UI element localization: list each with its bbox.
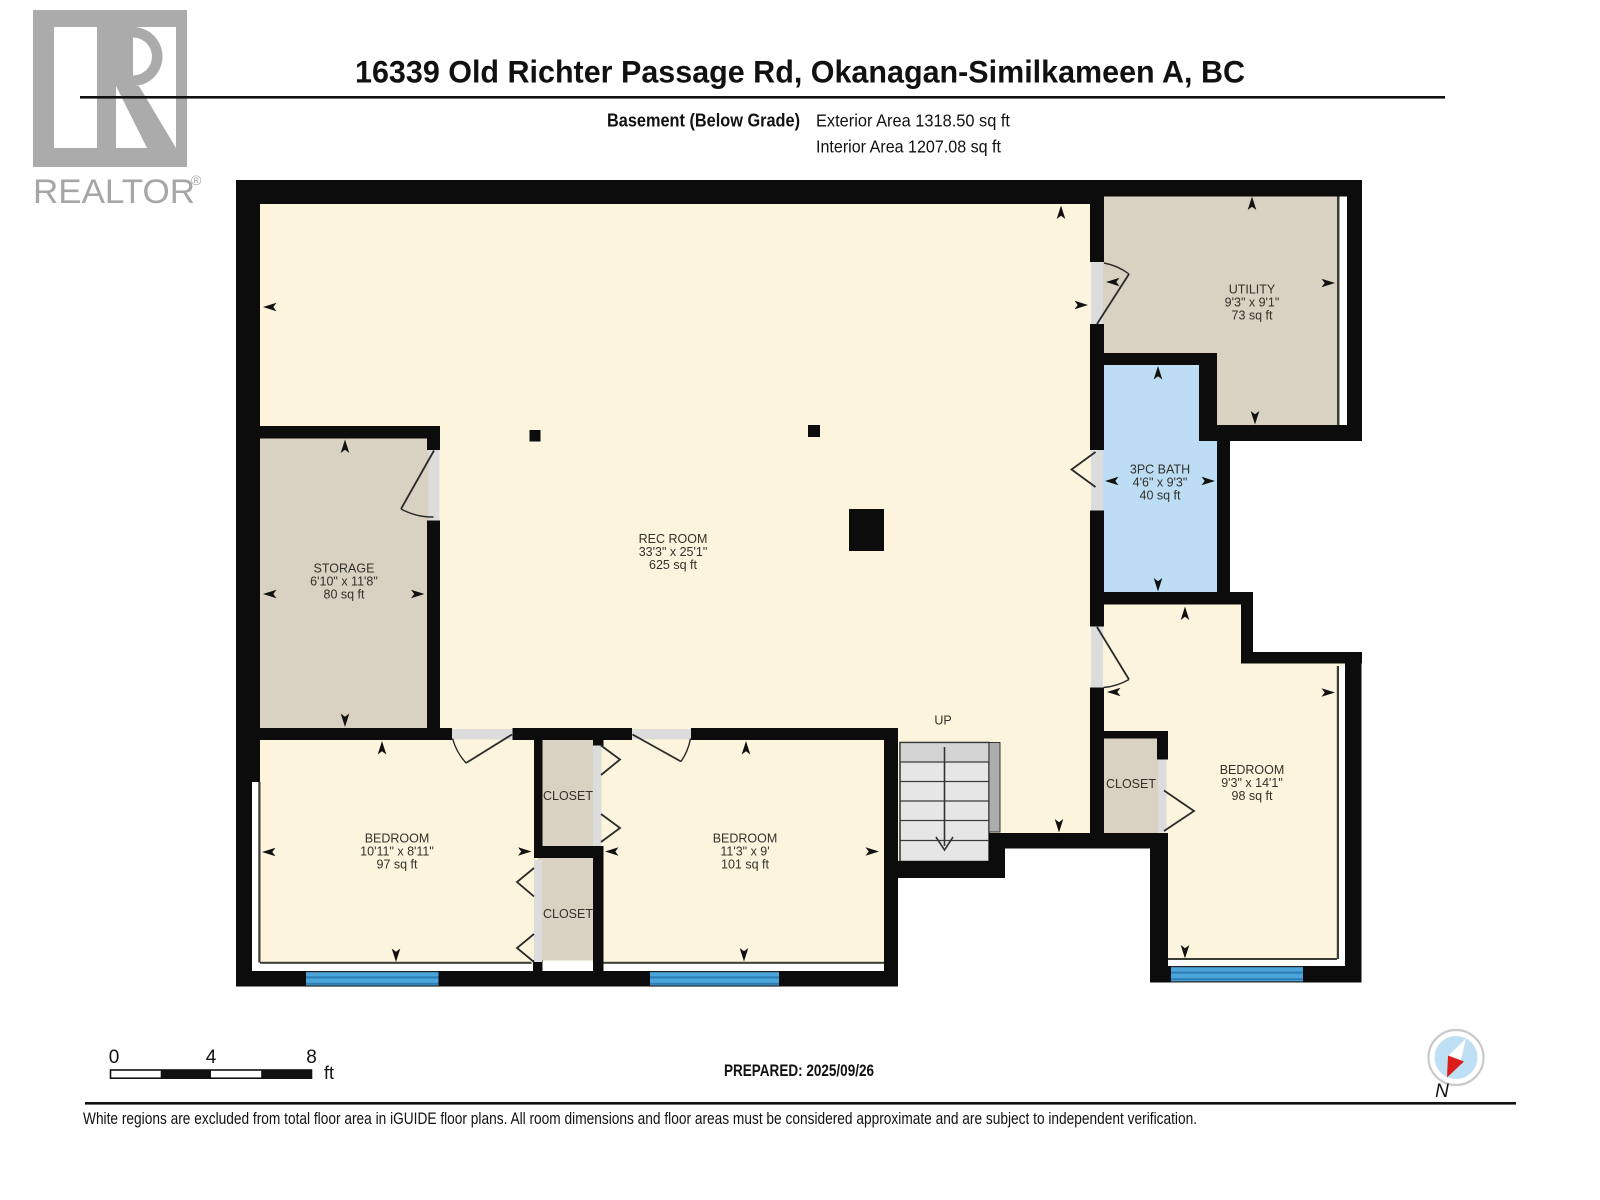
svg-text:UP: UP xyxy=(934,714,951,728)
svg-text:16339 Old Richter Passage Rd,: 16339 Old Richter Passage Rd, Okanagan-S… xyxy=(355,54,1245,90)
svg-text:4: 4 xyxy=(206,1047,217,1068)
svg-text:Interior Area 1207.08 sq ft: Interior Area 1207.08 sq ft xyxy=(816,137,1001,157)
svg-text:33'3" x 25'1": 33'3" x 25'1" xyxy=(639,545,708,559)
svg-text:80 sq ft: 80 sq ft xyxy=(324,588,366,602)
svg-text:White regions are excluded fro: White regions are excluded from total fl… xyxy=(83,1110,1197,1128)
svg-text:73 sq ft: 73 sq ft xyxy=(1232,309,1274,323)
svg-text:8: 8 xyxy=(306,1047,317,1068)
svg-text:UTILITY: UTILITY xyxy=(1229,283,1276,297)
svg-text:®: ® xyxy=(191,172,202,188)
svg-text:40 sq ft: 40 sq ft xyxy=(1140,489,1182,503)
svg-text:10'11" x 8'11": 10'11" x 8'11" xyxy=(360,845,434,859)
svg-text:BEDROOM: BEDROOM xyxy=(365,832,430,846)
svg-text:625 sq ft: 625 sq ft xyxy=(649,558,697,572)
svg-text:9'3" x 9'1": 9'3" x 9'1" xyxy=(1225,296,1280,310)
svg-text:CLOSET: CLOSET xyxy=(543,907,593,921)
svg-text:9'3" x 14'1": 9'3" x 14'1" xyxy=(1221,776,1283,790)
svg-text:98 sq ft: 98 sq ft xyxy=(1232,789,1274,803)
svg-text:Basement (Below Grade): Basement (Below Grade) xyxy=(607,111,800,131)
svg-text:ft: ft xyxy=(324,1063,334,1083)
svg-text:0: 0 xyxy=(109,1047,120,1068)
svg-text:PREPARED: 2025/09/26: PREPARED: 2025/09/26 xyxy=(724,1061,874,1080)
svg-text:97 sq ft: 97 sq ft xyxy=(377,858,419,872)
svg-text:CLOSET: CLOSET xyxy=(1106,777,1156,791)
svg-text:REALTOR: REALTOR xyxy=(33,173,195,211)
svg-text:11'3" x 9': 11'3" x 9' xyxy=(720,845,769,859)
svg-text:4'6" x 9'3": 4'6" x 9'3" xyxy=(1133,476,1188,490)
svg-text:CLOSET: CLOSET xyxy=(543,789,593,803)
svg-text:BEDROOM: BEDROOM xyxy=(1220,763,1285,777)
svg-text:STORAGE: STORAGE xyxy=(314,562,375,576)
svg-text:REC ROOM: REC ROOM xyxy=(639,532,708,546)
svg-text:101 sq ft: 101 sq ft xyxy=(721,858,769,872)
svg-text:6'10" x 11'8": 6'10" x 11'8" xyxy=(310,575,378,589)
svg-text:Exterior Area 1318.50 sq ft: Exterior Area 1318.50 sq ft xyxy=(816,111,1010,131)
svg-text:BEDROOM: BEDROOM xyxy=(713,832,778,846)
svg-text:N: N xyxy=(1435,1081,1449,1102)
svg-text:3PC BATH: 3PC BATH xyxy=(1130,463,1190,477)
